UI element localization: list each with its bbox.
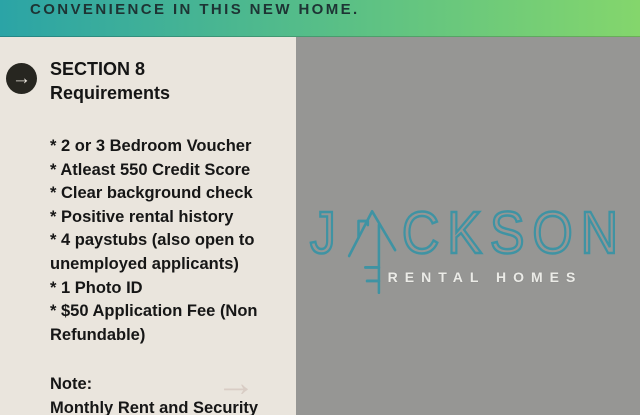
logo-letters-after: CKSON — [402, 205, 626, 261]
list-item: * Atleast 550 Credit Score — [50, 159, 292, 183]
right-arrow-icon: → — [12, 69, 31, 88]
requirements-list: * 2 or 3 Bedroom Voucher * Atleast 550 C… — [50, 135, 292, 347]
section-heading: SECTION 8 Requirements — [50, 57, 170, 105]
list-item: * 4 paystubs (also open to unemployed ap… — [50, 229, 292, 276]
list-item: * Clear background check — [50, 182, 292, 206]
top-banner: CONVENIENCE IN THIS NEW HOME. — [0, 0, 640, 37]
list-item: * 1 Photo ID — [50, 277, 292, 301]
arrow-circle-icon: → — [6, 63, 37, 94]
section-heading-line1: SECTION 8 — [50, 57, 170, 81]
logo-wordmark: J CKSON — [317, 205, 620, 263]
decorative-right-arrow-icon: → — [216, 363, 256, 403]
jackson-rental-homes-logo: J CKSON RENTAL HOME — [296, 205, 640, 285]
flyer-page: CONVENIENCE IN THIS NEW HOME. → SECTION … — [0, 0, 640, 415]
list-item: * $50 Application Fee (Non Refundable) — [50, 300, 292, 347]
list-item: * 2 or 3 Bedroom Voucher — [50, 135, 292, 159]
logo-panel: J CKSON RENTAL HOME — [296, 37, 640, 415]
logo-letters-before: J — [310, 205, 344, 261]
list-item: * Positive rental history — [50, 206, 292, 230]
requirements-panel: → SECTION 8 Requirements * 2 or 3 Bedroo… — [0, 37, 296, 415]
banner-headline: CONVENIENCE IN THIS NEW HOME. — [30, 1, 360, 18]
section-heading-line2: Requirements — [50, 81, 170, 105]
house-a-icon — [347, 205, 398, 297]
